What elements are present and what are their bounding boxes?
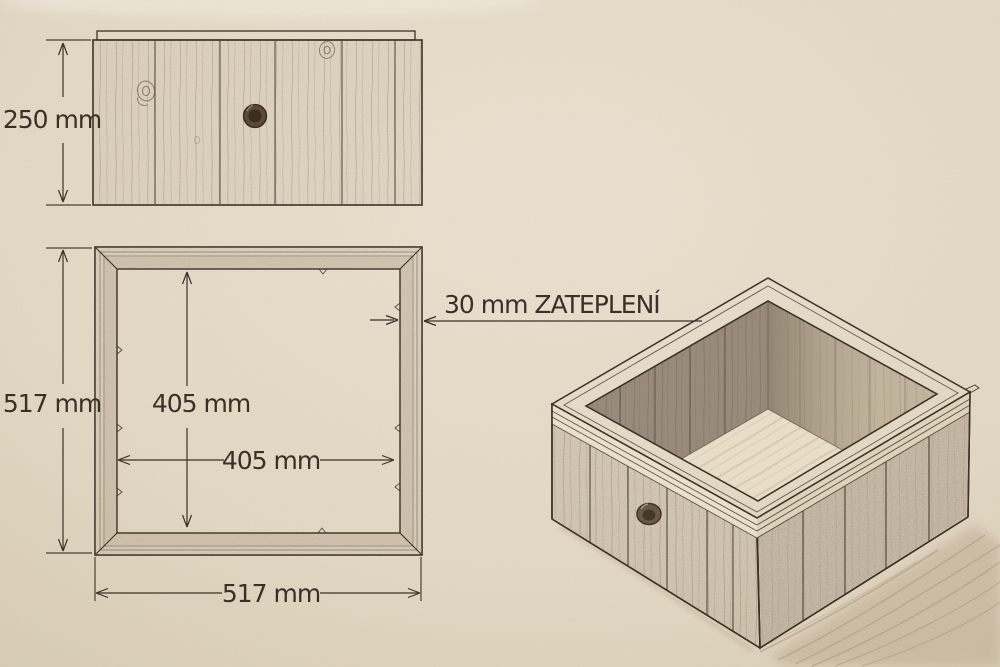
dimension-label-405mm-vertical: 405 mm xyxy=(152,389,250,418)
dimension-label-405mm-horizontal: 405 mm xyxy=(222,446,320,475)
insulation-note-label: 30 mm ZATEPLENÍ xyxy=(444,290,660,319)
entrance-hole-iso xyxy=(637,504,661,525)
entrance-hole xyxy=(244,105,267,128)
technical-drawing-svg: 250 mm 517 mm 405 mm 405 mm xyxy=(0,0,1000,667)
drawing-page: 250 mm 517 mm 405 mm 405 mm xyxy=(0,0,1000,667)
dimension-label-517mm-horizontal: 517 mm xyxy=(222,579,320,608)
dimension-label-250mm: 250 mm xyxy=(3,105,101,134)
dimension-label-517mm-vertical: 517 mm xyxy=(3,389,101,418)
